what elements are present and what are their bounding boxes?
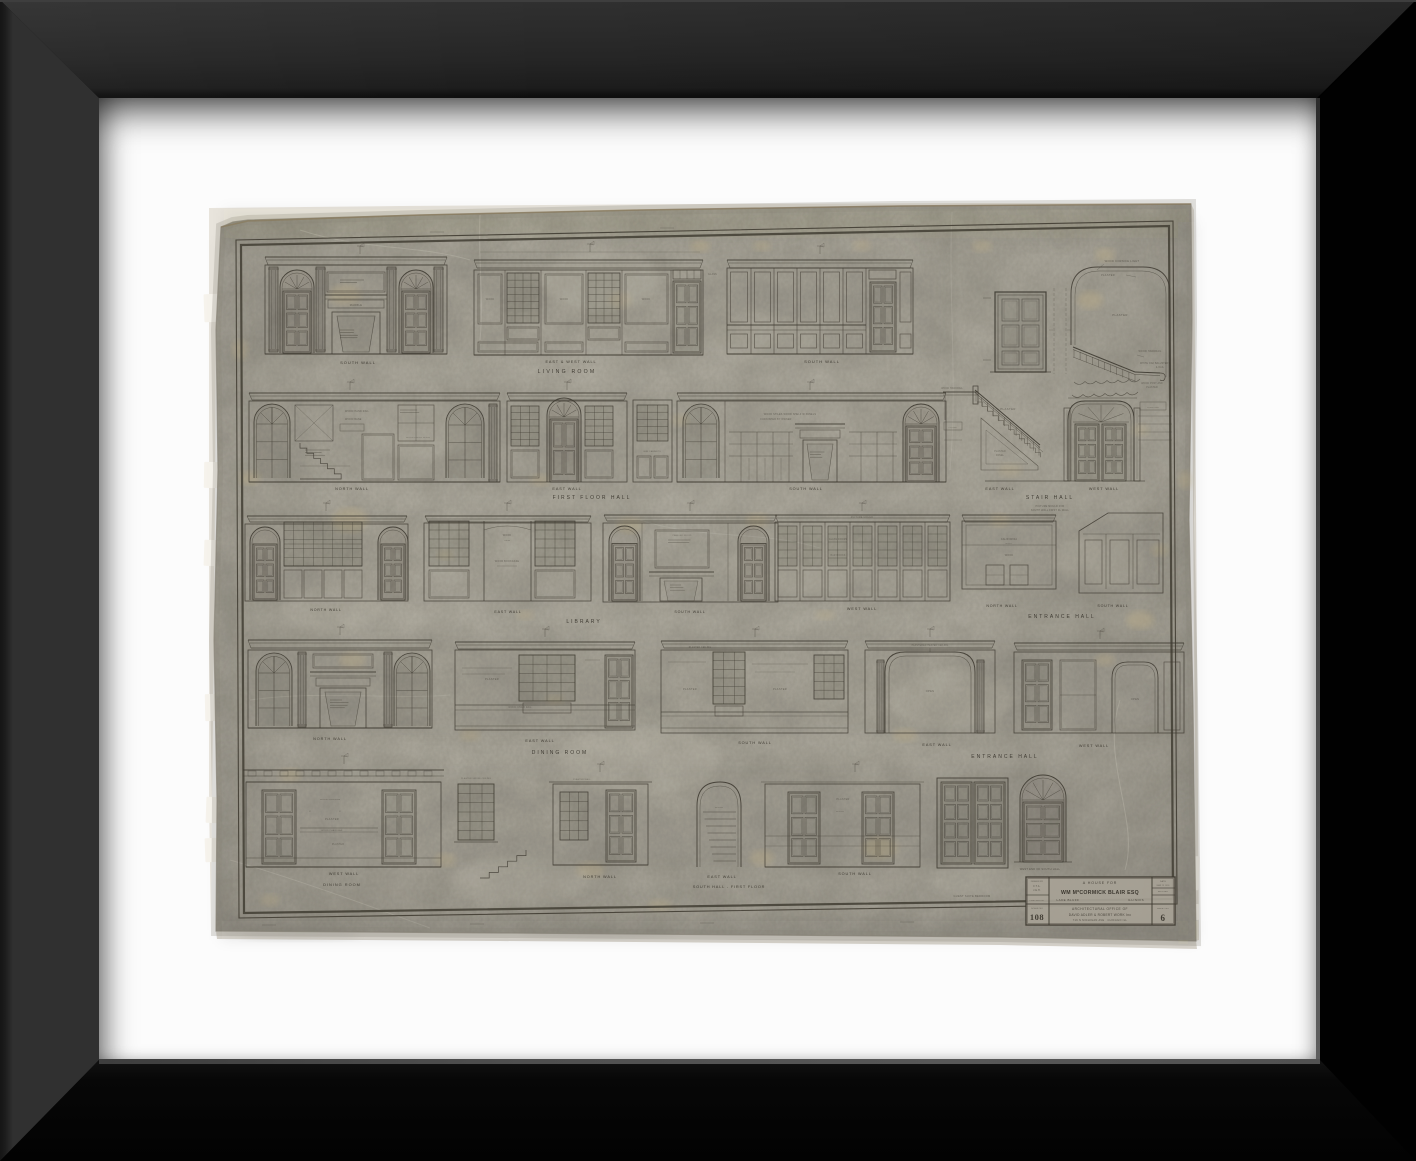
svg-text:GLASS DOORS: GLASS DOORS xyxy=(829,538,848,541)
svg-text:NORTH WALL: NORTH WALL xyxy=(583,875,617,879)
svg-text:SOUTH WALL FIRST FL WALL: SOUTH WALL FIRST FL WALL xyxy=(1031,509,1070,512)
svg-text:CLOSET: CLOSET xyxy=(949,427,959,429)
svg-text:PLASTER WALL: PLASTER WALL xyxy=(573,778,591,781)
svg-text:CHECKED BY: CHECKED BY xyxy=(1029,900,1045,902)
svg-text:SOUTH WALL: SOUTH WALL xyxy=(789,487,823,491)
svg-text:BAR BOOKS: BAR BOOKS xyxy=(831,554,846,557)
svg-text:DATE: DATE xyxy=(1160,880,1167,883)
svg-text:PANEL: PANEL xyxy=(996,454,1005,457)
svg-text:DINING ROOM: DINING ROOM xyxy=(323,882,361,887)
svg-text:EAST & WEST WALL: EAST & WEST WALL xyxy=(545,360,596,364)
svg-text:PLASTER: PLASTER xyxy=(1146,386,1158,389)
svg-text:PLASTER: PLASTER xyxy=(773,687,787,691)
svg-text:REVISED: REVISED xyxy=(1158,891,1169,893)
svg-text:WOOD: WOOD xyxy=(486,298,495,301)
svg-text:A HOUSE FOR: A HOUSE FOR xyxy=(1083,881,1117,885)
svg-text:PICTURE MOULD: PICTURE MOULD xyxy=(851,516,873,519)
svg-text:SOUTH WALL: SOUTH WALL xyxy=(340,360,376,365)
svg-text:SOUTH WALL: SOUTH WALL xyxy=(674,610,705,614)
svg-text:LIBRARY: LIBRARY xyxy=(566,619,601,625)
svg-text:WOOD CHAIR RAIL: WOOD CHAIR RAIL xyxy=(508,706,532,709)
svg-text:EAST WALL: EAST WALL xyxy=(494,610,521,614)
svg-text:FIRST FLOOR HALL: FIRST FLOOR HALL xyxy=(553,495,632,501)
svg-text:SOUTH WALL: SOUTH WALL xyxy=(1097,604,1128,608)
svg-text:SOUTH WALL: SOUTH WALL xyxy=(738,741,772,745)
svg-text:SOUTH HALL - FIRST FLOOR: SOUTH HALL - FIRST FLOOR xyxy=(693,884,766,889)
svg-text:NORTH WALL: NORTH WALL xyxy=(313,737,347,741)
svg-text:PLASTER: PLASTER xyxy=(325,817,339,821)
svg-text:PANELED WOOD: PANELED WOOD xyxy=(673,534,692,537)
svg-text:GUN CABINETS: GUN CABINETS xyxy=(643,450,661,453)
svg-text:6: 6 xyxy=(1161,913,1166,923)
svg-text:PLASTER: PLASTER xyxy=(1112,313,1128,317)
svg-text:WOOD HANDRAIL: WOOD HANDRAIL xyxy=(1138,350,1162,353)
svg-text:WOOD STILES WOOD SHELF W PANEL: WOOD STILES WOOD SHELF W PANELS xyxy=(764,413,817,416)
svg-text:TRIM: TRIM xyxy=(504,540,510,542)
svg-text:LIGHTING: LIGHTING xyxy=(1147,407,1159,409)
svg-text:LAKE BLUFF: LAKE BLUFF xyxy=(1056,898,1079,902)
svg-text:WOOD CORNICE LIGHT: WOOD CORNICE LIGHT xyxy=(1105,259,1140,263)
svg-text:ARCHITECTURAL OFFICE OF: ARCHITECTURAL OFFICE OF xyxy=(1072,907,1128,911)
svg-text:WOOD: WOOD xyxy=(642,298,651,301)
svg-text:PLASTER: PLASTER xyxy=(683,687,697,691)
svg-text:716 N MICHIGAN AVE CHICAGO I: 716 N MICHIGAN AVE CHICAGO ILL xyxy=(1073,918,1128,922)
svg-text:WOOD: WOOD xyxy=(715,807,723,809)
svg-text:SCALE NO: SCALE NO xyxy=(1031,907,1043,910)
svg-text:STAIR HALL: STAIR HALL xyxy=(1026,495,1074,501)
svg-text:ENTRANCE HALL: ENTRANCE HALL xyxy=(1028,614,1095,620)
svg-text:WOOD BOOKCASE: WOOD BOOKCASE xyxy=(495,560,520,563)
svg-text:WHITE OAK BALUSTERS: WHITE OAK BALUSTERS xyxy=(1140,362,1170,365)
svg-text:GLASS: GLASS xyxy=(708,273,717,276)
svg-text:EAST WALL: EAST WALL xyxy=(985,487,1014,491)
svg-text:SOUTH WALL: SOUTH WALL xyxy=(838,872,872,876)
svg-text:PLASTER: PLASTER xyxy=(836,798,849,801)
svg-text:LIVING ROOM: LIVING ROOM xyxy=(538,369,597,375)
svg-text:EAST WALL: EAST WALL xyxy=(552,487,581,491)
svg-text:F.T.A.: F.T.A. xyxy=(1033,885,1040,888)
svg-text:WOOD HANDRAIL: WOOD HANDRAIL xyxy=(941,387,963,390)
svg-text:PLASTER CEILING: PLASTER CEILING xyxy=(689,646,712,649)
svg-text:DRAWN BY: DRAWN BY xyxy=(1031,880,1044,883)
svg-text:WEST END OF SOUTH HALL: WEST END OF SOUTH HALL xyxy=(1020,867,1061,871)
svg-text:PLASTERED HEATED CEILING: PLASTERED HEATED CEILING xyxy=(912,644,949,647)
svg-text:WEST WALL: WEST WALL xyxy=(847,607,877,611)
svg-text:WOOD: WOOD xyxy=(1005,554,1014,557)
svg-text:EAST WALL: EAST WALL xyxy=(707,875,736,879)
svg-text:108: 108 xyxy=(1030,912,1044,922)
svg-text:PLASTER: PLASTER xyxy=(1000,407,1016,411)
svg-text:WOOD: WOOD xyxy=(503,534,512,537)
svg-text:WEST WALL: WEST WALL xyxy=(329,872,359,876)
svg-text:EAST WALL: EAST WALL xyxy=(525,739,554,743)
svg-text:MAR 23 1926: MAR 23 1926 xyxy=(1157,884,1171,887)
svg-text:BUILT: BUILT xyxy=(1006,543,1013,545)
svg-text:DAVID ADLER & ROBERT WORK Inc: DAVID ADLER & ROBERT WORK Inc xyxy=(1069,913,1132,917)
svg-text:WOOD: WOOD xyxy=(836,811,844,813)
svg-text:ENTRANCE HALL: ENTRANCE HALL xyxy=(971,754,1038,760)
svg-text:MARBLE: MARBLE xyxy=(350,303,362,307)
svg-text:OPEN: OPEN xyxy=(1131,697,1140,701)
svg-text:WOOD BASE: WOOD BASE xyxy=(345,418,362,421)
svg-text:FURNISHED BY OWNER: FURNISHED BY OWNER xyxy=(760,418,791,421)
svg-text:SHEET NO: SHEET NO xyxy=(1157,908,1169,910)
svg-text:GUEST SUITE BEDROOM: GUEST SUITE BEDROOM xyxy=(953,894,990,898)
svg-text:SOUTH WALL: SOUTH WALL xyxy=(804,359,840,364)
svg-text:WOOD POST AND: WOOD POST AND xyxy=(1141,382,1163,385)
svg-text:PLASTER: PLASTER xyxy=(332,843,344,846)
svg-text:J.E.H.: J.E.H. xyxy=(1033,889,1041,892)
svg-text:PLASTER: PLASTER xyxy=(994,450,1006,453)
svg-text:EAST WALL: EAST WALL xyxy=(922,743,951,747)
svg-text:PLASTER: PLASTER xyxy=(1101,273,1115,277)
svg-text:NORTH WALL: NORTH WALL xyxy=(310,608,341,612)
svg-text:PICTURE MOULD FOR: PICTURE MOULD FOR xyxy=(1036,505,1065,508)
svg-text:& RAIL: & RAIL xyxy=(1156,366,1165,369)
svg-text:WOOD HAND RAIL: WOOD HAND RAIL xyxy=(345,410,369,413)
svg-text:NORTH WALL: NORTH WALL xyxy=(335,487,369,491)
svg-text:WOOD CORNICE: WOOD CORNICE xyxy=(320,799,341,801)
svg-text:WEST WALL: WEST WALL xyxy=(1089,487,1119,491)
svg-text:WOOD: WOOD xyxy=(560,298,569,301)
svg-text:CALIFORNIA: CALIFORNIA xyxy=(1001,538,1018,541)
svg-text:PLASTER SMOKE CEILING: PLASTER SMOKE CEILING xyxy=(461,777,491,780)
svg-text:PLASTER: PLASTER xyxy=(485,677,499,681)
svg-text:ILLINOIS: ILLINOIS xyxy=(1128,898,1144,902)
svg-text:WM MºCORMICK BLAIR ESQ: WM MºCORMICK BLAIR ESQ xyxy=(1061,890,1139,896)
svg-text:OPEN: OPEN xyxy=(926,689,935,693)
svg-text:WOOD LINTEL DOOR: WOOD LINTEL DOOR xyxy=(406,437,430,439)
svg-text:WEST WALL: WEST WALL xyxy=(1079,744,1109,748)
svg-text:WOOD CHAIR RAIL: WOOD CHAIR RAIL xyxy=(321,829,343,832)
svg-text:NORTH WALL: NORTH WALL xyxy=(986,604,1017,608)
svg-text:DINING ROOM: DINING ROOM xyxy=(532,750,588,756)
